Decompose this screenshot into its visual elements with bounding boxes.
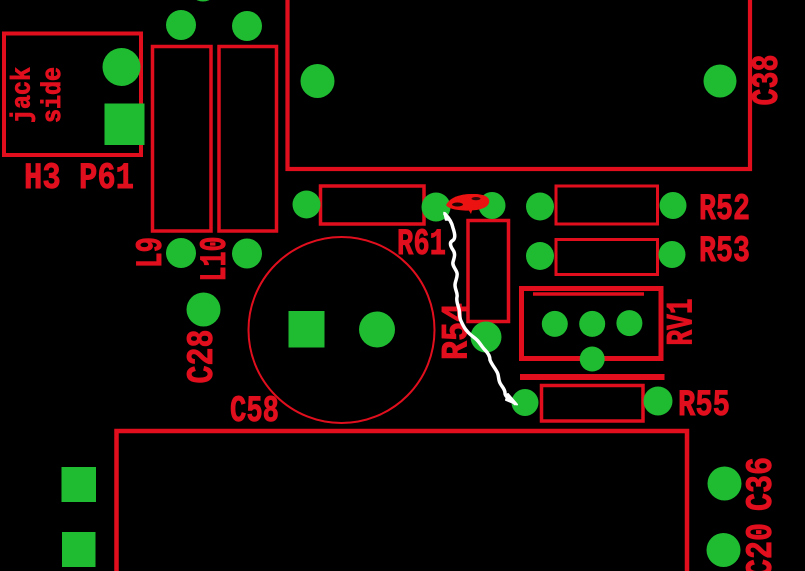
svg-text:R52: R52 [699, 189, 750, 231]
svg-text:RV1: RV1 [662, 299, 704, 346]
svg-text:L10: L10 [195, 237, 237, 282]
svg-text:C36: C36 [741, 457, 783, 511]
svg-text:L9: L9 [131, 237, 173, 268]
svg-text:R53: R53 [699, 231, 750, 273]
svg-text:H3 P61: H3 P61 [24, 158, 134, 200]
svg-text:R54: R54 [437, 303, 479, 360]
svg-text:C28: C28 [182, 330, 224, 384]
svg-text:R61: R61 [397, 224, 446, 266]
svg-text:R55: R55 [678, 385, 730, 427]
svg-text:C38: C38 [747, 55, 789, 106]
svg-text:C20: C20 [741, 523, 783, 571]
svg-text:side: side [39, 67, 69, 123]
svg-text:C58: C58 [230, 391, 279, 433]
svg-text:jack: jack [9, 67, 39, 123]
